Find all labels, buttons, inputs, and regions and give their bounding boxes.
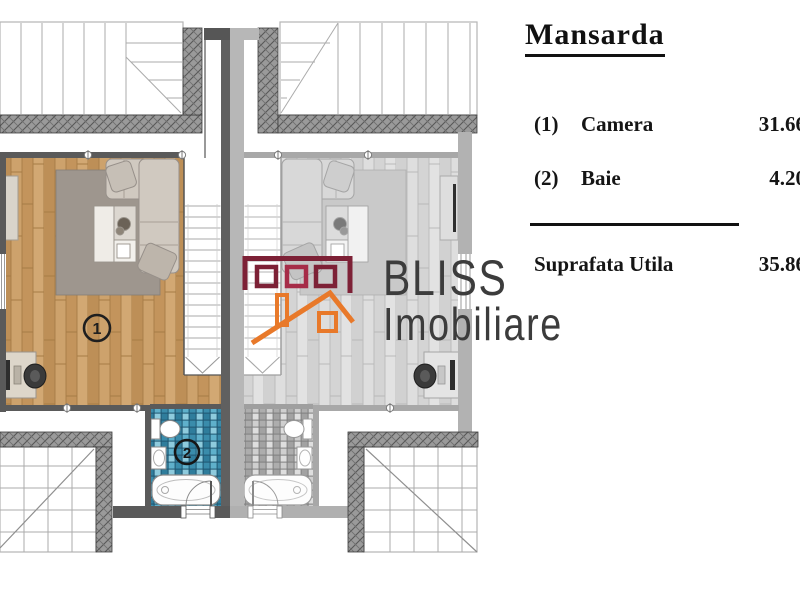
room-name: Baie <box>581 166 621 191</box>
room-area: 4.20 <box>640 166 800 191</box>
bathroom-right <box>244 404 313 507</box>
roof-block-bottom-left <box>0 432 112 552</box>
page-title: Mansarda <box>525 18 665 57</box>
logo-text-imobiliare: Imobiliare <box>383 301 563 347</box>
toilet-right <box>284 419 312 439</box>
floorplan-page: 1 2 BLISS Imobiliare Mansarda (1) Camera… <box>0 0 800 600</box>
room-number: (1) <box>534 112 559 137</box>
room-number: (2) <box>534 166 559 191</box>
sink-right <box>297 447 312 469</box>
total-area: 35.86 <box>640 252 800 277</box>
svg-text:1: 1 <box>93 321 102 338</box>
legend-row-baie: (2) Baie 4.20 <box>0 166 800 194</box>
roof-block-bottom-right <box>348 432 478 552</box>
legend-row-camera: (1) Camera 31.66 <box>0 112 800 140</box>
toilet-left <box>151 419 180 439</box>
svg-text:2: 2 <box>183 445 191 462</box>
sink-left <box>151 447 166 469</box>
room-area: 31.66 <box>640 112 800 137</box>
legend-divider <box>530 223 739 226</box>
legend-row-total: Suprafata Utila 35.86 <box>0 252 800 280</box>
